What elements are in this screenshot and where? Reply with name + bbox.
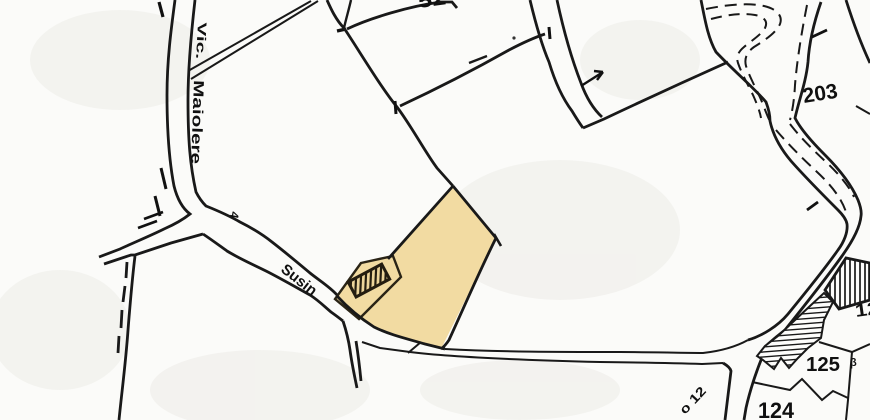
svg-text:125: 125 [806,354,840,376]
svg-text:Vic.: Vic. [193,22,209,60]
svg-text:β: β [850,357,857,369]
svg-text:Maiolere: Maiolere [187,80,206,165]
svg-text:12: 12 [854,298,870,321]
svg-text:124: 124 [758,398,795,420]
